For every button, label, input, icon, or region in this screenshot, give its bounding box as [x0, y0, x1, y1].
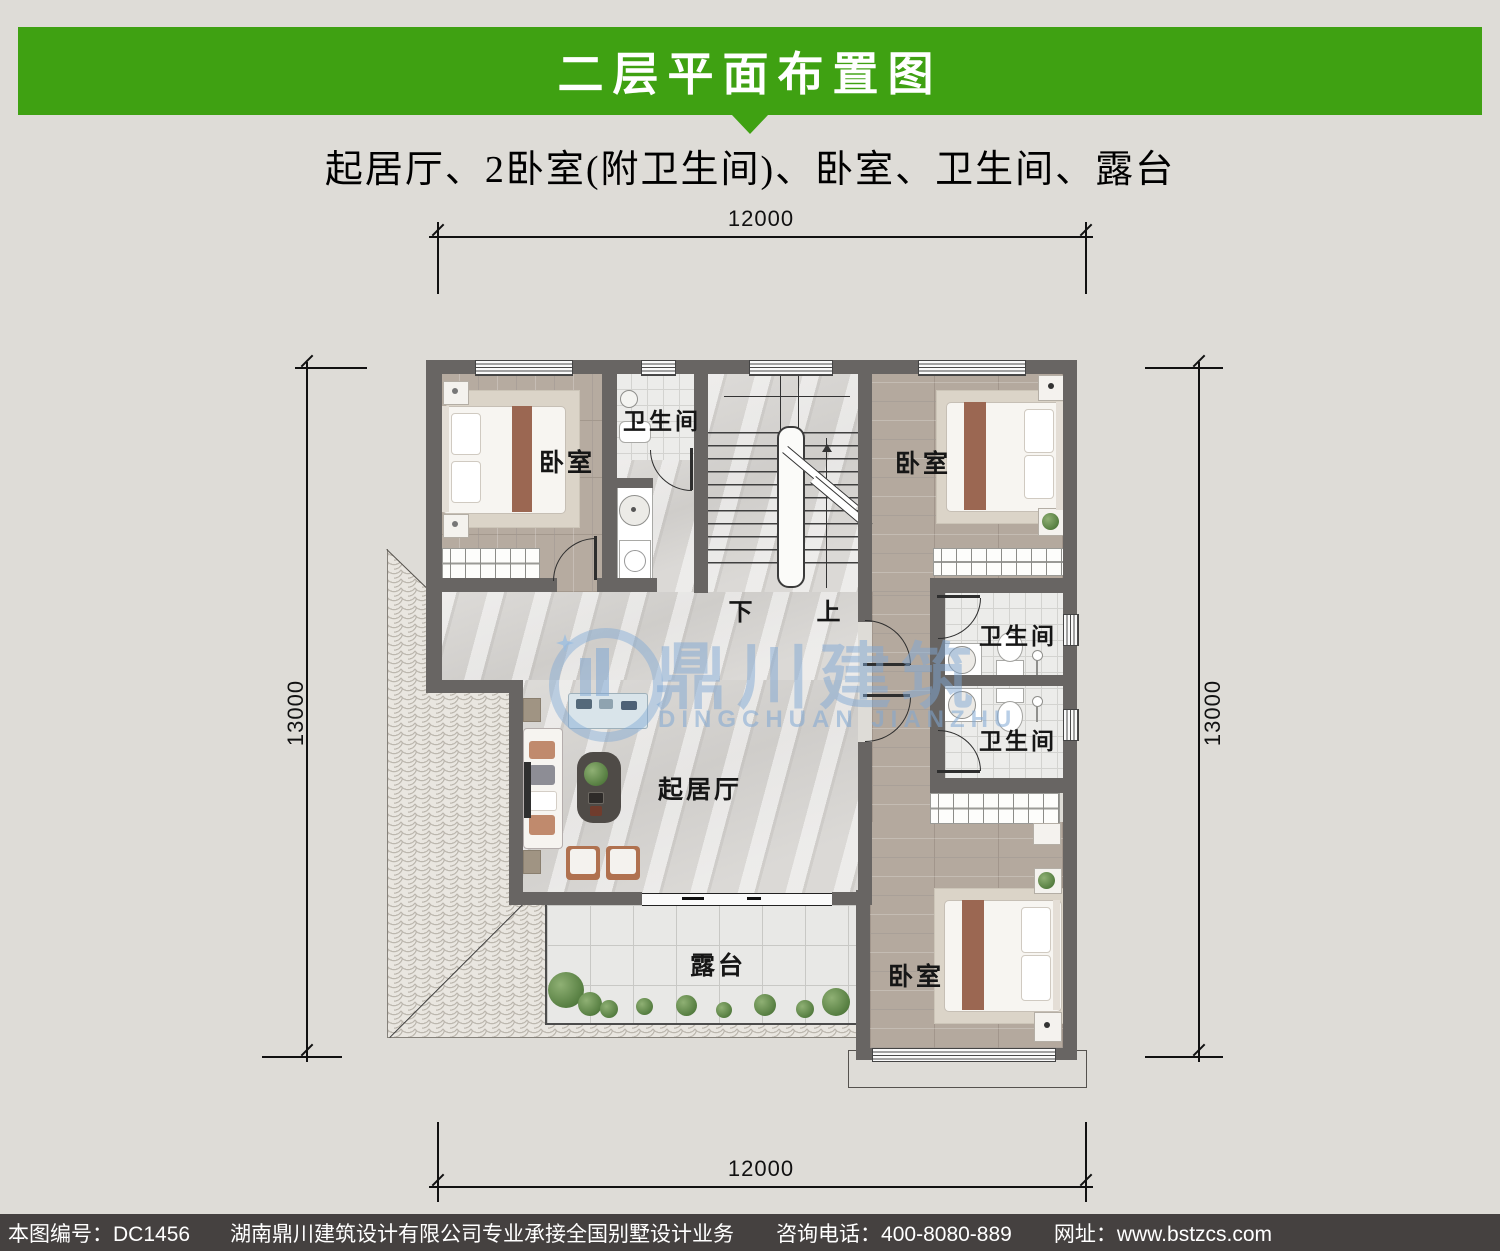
dim-left-value: 13000: [283, 667, 309, 759]
armchair: [606, 846, 640, 880]
bath-lower-label: 卫生间: [978, 722, 1058, 756]
window-bedroom3: [872, 1048, 1056, 1062]
window-bath-top: [641, 360, 676, 376]
window-bath-upper: [1063, 614, 1079, 646]
pillow: [451, 413, 481, 455]
tv-panel: [524, 762, 531, 818]
shrub: [796, 1000, 814, 1018]
pillow: [1024, 455, 1054, 499]
wardrobe: [933, 548, 1065, 576]
wall-west-lower: [509, 680, 523, 905]
stair-line: [724, 396, 850, 397]
stair-line: [780, 373, 781, 430]
wall-bedroom1-south: [426, 578, 557, 592]
dim-top-ext-left: [437, 222, 439, 294]
bedroom-top-right-label: 卧室: [888, 444, 958, 480]
shrub: [754, 994, 776, 1016]
wall-stair-east-lower: [858, 742, 872, 905]
sofa-cushion: [529, 741, 555, 759]
pillow: [1021, 955, 1051, 1001]
header-pointer-triangle: [732, 115, 768, 134]
armchair-seat: [570, 849, 596, 874]
dim-right-ext-top: [1145, 367, 1223, 369]
lamp-dot: [452, 521, 458, 527]
terrace-label: 露台: [688, 946, 748, 982]
armchair-seat: [610, 849, 636, 874]
lamp-dot: [452, 388, 458, 394]
bedroom-top-left-label: 卧室: [532, 443, 602, 479]
lamp-dot: [1048, 383, 1054, 389]
bed-runner: [512, 406, 532, 512]
shrub: [676, 995, 697, 1016]
bed-headboard: [442, 406, 449, 512]
wall-bath-top-west: [602, 360, 617, 590]
dim-top-value: 12000: [701, 206, 821, 232]
shrub: [716, 1002, 732, 1018]
toilet-tank: [996, 660, 1024, 676]
stair-direction-line: [826, 438, 827, 588]
wall-bathblock-south: [930, 778, 1077, 793]
shrub: [636, 998, 653, 1015]
dim-bottom-ext-left: [437, 1122, 439, 1202]
wall-stair-west: [694, 360, 708, 593]
wall-bath-top-south: [615, 478, 653, 488]
dresser: [1033, 823, 1061, 845]
washer-drum: [624, 550, 646, 572]
stair-arrow: [822, 444, 832, 452]
wall-bedroom3-west: [856, 890, 870, 1048]
wall-switch: [523, 850, 541, 874]
roof-edge-bottom: [387, 1037, 857, 1038]
wall-switch: [523, 698, 541, 722]
pillow: [1021, 907, 1051, 953]
towel-rail: [1036, 706, 1038, 722]
towel-rail: [1036, 660, 1038, 676]
table-plant: [584, 762, 608, 786]
bath-upper-label: 卫生间: [978, 617, 1058, 651]
watermark-en: DINGCHUAN JIANZHU: [658, 706, 1017, 734]
dim-bottom-value: 12000: [701, 1156, 821, 1182]
window-bedroom2: [918, 360, 1026, 376]
wardrobe: [930, 793, 1060, 824]
bedroom-bottom-right-label: 卧室: [881, 957, 951, 993]
shrub: [578, 992, 602, 1016]
window-bath-lower: [1063, 709, 1079, 741]
footer-bar: 本图编号：DC1456 湖南鼎川建筑设计有限公司专业承接全国别墅设计业务 咨询电…: [0, 1214, 1500, 1251]
page-title: 二层平面布置图: [558, 38, 943, 104]
terrace-sliding-door: [642, 893, 832, 906]
shrub: [822, 988, 850, 1016]
stair-line: [798, 373, 799, 430]
wall-south-living-west: [509, 892, 642, 905]
dim-right-ext-bottom: [1145, 1056, 1223, 1058]
potted-plant: [1042, 513, 1059, 530]
slider-handle: [747, 897, 761, 900]
dim-bottom-ext-right: [1085, 1122, 1087, 1202]
plan-subtitle: 起居厅、2卧室(附卫生间)、卧室、卫生间、露台: [0, 138, 1500, 193]
dim-top-ext-right: [1085, 222, 1087, 294]
bed-headboard: [1053, 900, 1060, 1010]
sofa-cushion: [529, 815, 555, 835]
roof-edge-left: [387, 549, 388, 1038]
table-tray: [588, 792, 604, 804]
table-tray: [590, 806, 602, 816]
footer-website: 网址：www.bstzcs.com: [1054, 1218, 1272, 1248]
window-bedroom1: [475, 360, 573, 376]
shrub: [600, 1000, 618, 1018]
sofa-cushion: [529, 765, 555, 785]
pillow: [451, 461, 481, 503]
watermark-logo-building: [580, 658, 591, 696]
header-banner: 二层平面布置图: [18, 27, 1482, 115]
dim-top-line: [429, 236, 1093, 238]
lamp-dot: [1044, 1022, 1050, 1028]
footer-plan-number: 本图编号：DC1456: [8, 1218, 190, 1248]
dim-right-value: 13000: [1200, 667, 1226, 759]
floor-plan-page: 二层平面布置图 起居厅、2卧室(附卫生间)、卧室、卫生间、露台 12000 12…: [0, 0, 1500, 1251]
footer-phone: 咨询电话：400-8080-889: [776, 1218, 1012, 1248]
window-stairwell: [749, 360, 833, 376]
wall-stair-east-upper: [858, 360, 872, 622]
sofa-cushion: [529, 791, 557, 811]
wardrobe: [442, 548, 540, 579]
armchair: [566, 846, 600, 880]
living-room-label: 起居厅: [658, 770, 742, 806]
pillow: [1024, 409, 1054, 453]
slider-handle: [682, 897, 704, 900]
wall-west-upper: [426, 360, 442, 682]
wall-bedroom2-south: [930, 578, 1077, 593]
bed-runner: [962, 900, 984, 1010]
stair-up-label: 上: [812, 592, 848, 627]
basin-drain: [631, 507, 636, 512]
potted-plant: [1038, 872, 1055, 889]
dim-bottom-line: [429, 1186, 1093, 1188]
bed-headboard: [1056, 402, 1063, 510]
footer-company: 湖南鼎川建筑设计有限公司专业承接全国别墅设计业务: [230, 1218, 734, 1248]
watermark-logo-building: [596, 648, 609, 696]
stair-down-label: 下: [724, 592, 760, 627]
bath-top-label: 卫生间: [622, 402, 702, 436]
bed-runner: [964, 402, 986, 510]
